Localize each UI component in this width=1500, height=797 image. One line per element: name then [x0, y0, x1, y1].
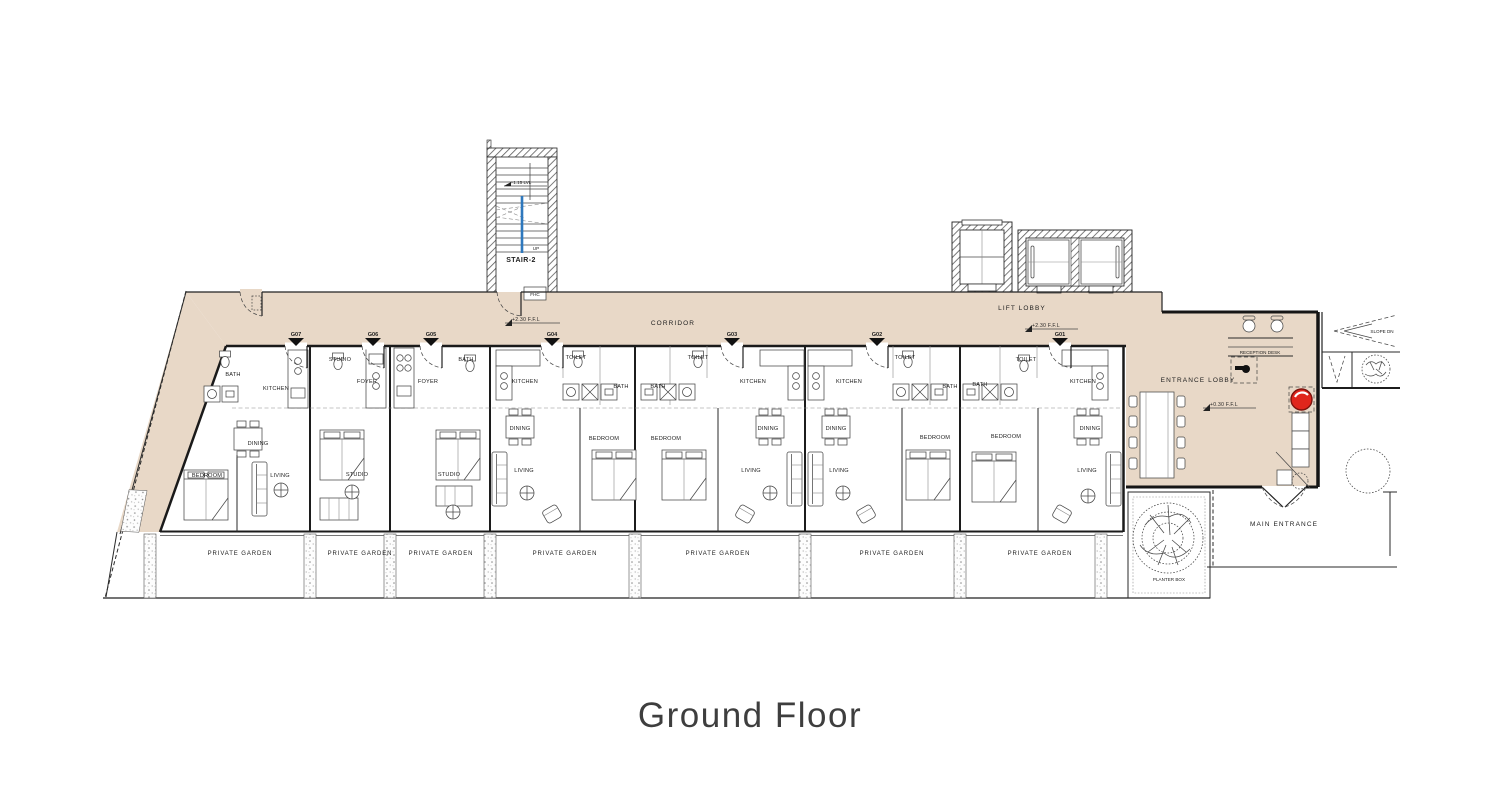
dining-table: [234, 421, 262, 457]
room-label: STUDIO: [329, 357, 352, 363]
room-label: KITCHEN: [836, 379, 862, 385]
room-label: LIVING: [270, 473, 290, 479]
sofa: [1106, 452, 1121, 506]
lift-lobby-label: LIFT LOBBY: [998, 305, 1046, 312]
garden-label: PRIVATE GARDEN: [328, 551, 393, 557]
sofa: [787, 452, 802, 506]
room-label: DINING: [248, 441, 269, 447]
shower: [912, 384, 928, 400]
room-label: BATH: [613, 384, 628, 390]
room-label: TOILET: [895, 355, 916, 361]
room-label: FOYER: [357, 379, 377, 385]
room-label: TOILET: [566, 355, 587, 361]
lobby-table: [1140, 392, 1174, 478]
bed: [972, 452, 1016, 502]
lift-lobby-level: +2.30 F.F.L: [1032, 323, 1060, 329]
floor-plan-drawing: +1.15 LVL UP STAIR-2 FHC: [0, 0, 1500, 797]
tree-canopy-icon: [1346, 449, 1390, 493]
corridor-label: CORRIDOR: [651, 320, 695, 327]
tree-icon: [1133, 503, 1203, 573]
floor-plan-page: +1.15 LVL UP STAIR-2 FHC: [0, 0, 1500, 797]
unit-number-label: G06: [368, 332, 379, 338]
room-label: BATH: [225, 372, 240, 378]
kitchen-counter: [808, 366, 824, 400]
kitchen-counter: [808, 350, 852, 366]
garden-label: PRIVATE GARDEN: [409, 551, 474, 557]
page-title: Ground Floor: [638, 696, 862, 735]
unit-number-label: G02: [872, 332, 883, 338]
planter-box-label: PLANTER BOX: [1153, 577, 1185, 582]
washer: [679, 384, 695, 400]
room-label: LIVING: [1077, 468, 1097, 474]
unit-number-label: G07: [291, 332, 302, 338]
room-label: KITCHEN: [263, 386, 289, 392]
room-label: DINING: [510, 426, 531, 432]
room-label: BEDROOM: [589, 436, 619, 442]
wardrobe: [436, 486, 472, 506]
room-label: DINING: [758, 426, 779, 432]
entrance-lobby-level: +0.30 F.F.L: [1210, 402, 1238, 408]
round-table: [1081, 489, 1095, 503]
sofa: [492, 452, 507, 506]
garden-label: PRIVATE GARDEN: [208, 551, 273, 557]
sofa: [808, 452, 823, 506]
room-label: DINING: [826, 426, 847, 432]
room-label: BATH: [458, 357, 473, 363]
room-label: BEDROOM: [651, 436, 681, 442]
room-label: BATH: [972, 382, 987, 388]
room-label: STUDIO: [346, 472, 369, 478]
armchair: [856, 504, 877, 524]
stair-name-label: STAIR-2: [506, 257, 536, 264]
fire-hose-cabinet-label: FHC: [530, 292, 540, 297]
stair-up-label: UP: [533, 246, 539, 251]
round-table: [446, 505, 460, 519]
lift-passenger: [1018, 230, 1132, 293]
slope-dn-label: SLOPE DN: [1370, 329, 1393, 334]
room-label: LIVING: [829, 468, 849, 474]
room-label: BEDROOM: [991, 434, 1021, 440]
room-label: DINING: [1080, 426, 1101, 432]
kitchen-counter: [788, 366, 804, 400]
shower: [582, 384, 598, 400]
kitchen-counter: [496, 366, 512, 400]
kitchen-counter: [496, 350, 540, 366]
round-table: [274, 483, 288, 497]
shrub-icon: [1362, 355, 1390, 383]
armchair: [1052, 504, 1073, 524]
toilet: [220, 351, 231, 368]
sink: [222, 386, 238, 402]
garden-label: PRIVATE GARDEN: [686, 551, 751, 557]
washer: [1001, 384, 1017, 400]
round-table: [345, 485, 359, 499]
washer: [563, 384, 579, 400]
stair-level-label: +1.15 LVL: [511, 180, 532, 185]
room-label: KITCHEN: [512, 379, 538, 385]
kitchen-counter: [288, 350, 308, 408]
unit-number-label: G04: [547, 332, 558, 338]
round-table: [520, 486, 534, 500]
armchair: [735, 504, 756, 524]
room-label: TOILET: [1016, 357, 1037, 363]
room-label: BEDROOM: [920, 435, 950, 441]
sofa: [252, 462, 267, 516]
reception-desk-label: RECEPTION DESK: [1240, 350, 1282, 355]
bed: [662, 450, 706, 500]
slope-ramp: SLOPE DN: [1322, 312, 1400, 388]
washer: [204, 386, 220, 402]
room-label: STUDIO: [438, 472, 461, 478]
garden-label: PRIVATE GARDEN: [1008, 551, 1073, 557]
room-label: BEDROOM: [192, 473, 222, 479]
garden-label: PRIVATE GARDEN: [860, 551, 925, 557]
washer: [893, 384, 909, 400]
room-label: LIVING: [514, 468, 534, 474]
room-label: LIVING: [741, 468, 761, 474]
kitchen-counter: [760, 350, 804, 366]
room-label: BATH: [650, 384, 665, 390]
round-table: [836, 486, 850, 500]
kitchen-counter: [1062, 350, 1108, 366]
room-label: KITCHEN: [1070, 379, 1096, 385]
planter-box: PLANTER BOX: [1128, 492, 1210, 598]
bed: [906, 450, 950, 500]
room-label: FOYER: [418, 379, 438, 385]
room-label: KITCHEN: [740, 379, 766, 385]
room-label: BATH: [942, 384, 957, 390]
room-label: TOILET: [688, 355, 709, 361]
main-entrance-label: MAIN ENTRANCE: [1250, 521, 1318, 528]
round-table: [763, 486, 777, 500]
unit-number-label: G03: [727, 332, 738, 338]
unit-number-label: G01: [1055, 332, 1066, 338]
armchair: [542, 504, 563, 524]
lift-service: [952, 220, 1012, 292]
unit-number-label: G05: [426, 332, 437, 338]
stair-core: +1.15 LVL UP STAIR-2 FHC: [487, 140, 557, 316]
corridor-level: +2.30 F.F.L: [512, 317, 540, 323]
garden-label: PRIVATE GARDEN: [533, 551, 598, 557]
bed: [592, 450, 636, 500]
entrance-lobby-label: ENTRANCE LOBBY: [1161, 377, 1236, 384]
